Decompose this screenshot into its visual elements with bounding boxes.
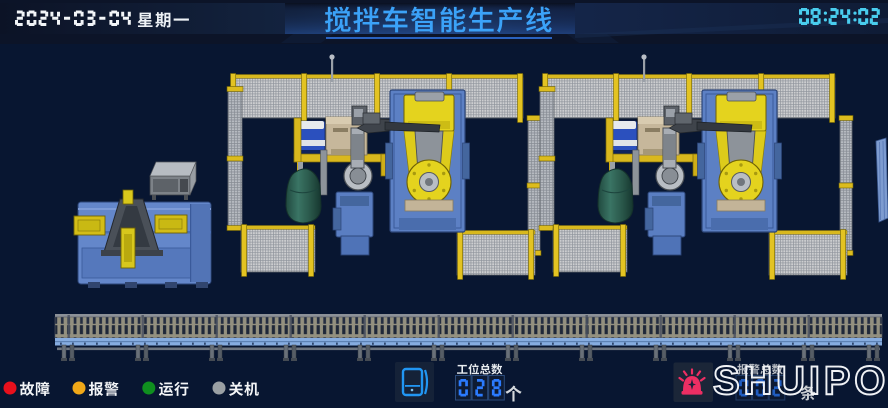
svg-text:SHUIPO: SHUIPO — [713, 359, 888, 403]
